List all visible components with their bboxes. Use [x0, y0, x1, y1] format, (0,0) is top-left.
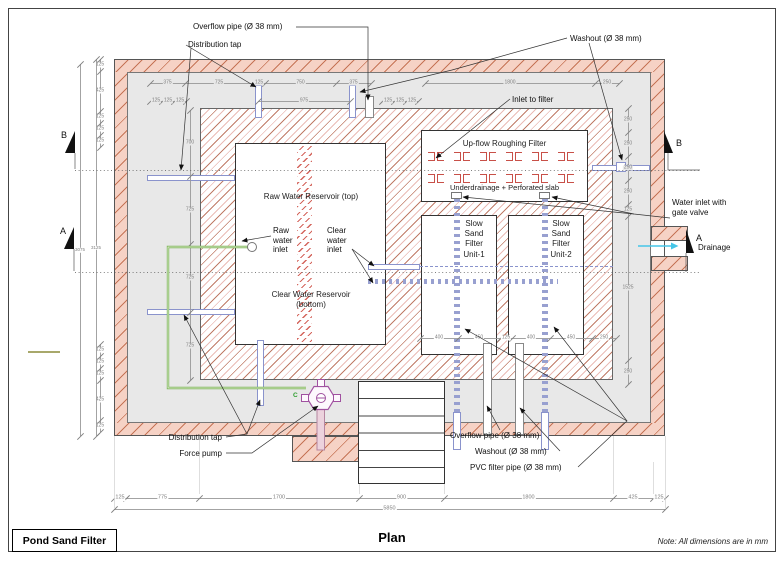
- bracket-icon: [437, 174, 444, 183]
- bracket-icon: [515, 174, 522, 183]
- gate-valve-unit1: [451, 192, 462, 199]
- section-letter-b-0: B: [61, 130, 67, 140]
- section-letter-a-3: A: [696, 233, 702, 243]
- bracket-icon: [437, 152, 444, 161]
- drawing-sheet: Raw Water Reservoir (top) Clear Water Re…: [0, 0, 784, 566]
- washout-pipe-bottom-stub: [515, 343, 524, 435]
- callout-clear-water-inlet: Clear water inlet: [327, 226, 347, 255]
- bracket-icon: [489, 174, 496, 183]
- drawing-caption: Plan: [352, 530, 432, 545]
- bracket-icon: [480, 152, 487, 161]
- callout-pvc-filter-pipe: PVC filter pipe (Ø 38 mm): [470, 463, 562, 473]
- drain-duct-top-wall: [651, 226, 688, 241]
- callout-distribution-tap-bottom: Distribution tap: [169, 433, 222, 443]
- callout-water-inlet-gate-valve: Water inlet with gate valve: [672, 198, 726, 217]
- washout-pipe-top-right: [349, 85, 356, 118]
- label-ssf-unit2: Slow Sand Filter Unit-2: [539, 219, 583, 260]
- bracket-icon: [506, 152, 513, 161]
- washout-valve-right: [616, 162, 626, 172]
- bracket-icon: [532, 174, 539, 183]
- reservoir-partition-dashed: [297, 144, 312, 344]
- bracket-icon: [480, 174, 487, 183]
- bracket-icon: [567, 174, 574, 183]
- distribution-tap-pipe-lower: [147, 309, 235, 315]
- callout-raw-water-inlet: Raw water inlet: [273, 226, 293, 255]
- overflow-pipe-opening: [365, 96, 374, 118]
- washout-pipe-top-left: [255, 85, 262, 118]
- drain-duct-bottom-wall: [651, 256, 688, 271]
- callout-washout-top: Washout (Ø 38 mm): [570, 34, 642, 44]
- distribution-tap-pipe-upper: [147, 175, 235, 181]
- stairs: [358, 381, 445, 484]
- callout-force-pump: Force pump: [179, 449, 222, 459]
- gate-valve-unit2: [539, 192, 550, 199]
- bracket-icon: [463, 152, 470, 161]
- clear-water-inlet-pipe: [368, 264, 420, 270]
- label-raw-reservoir: Raw Water Reservoir (top): [240, 192, 382, 202]
- filter-pipe-end-2: [541, 412, 549, 450]
- bracket-icon: [541, 174, 548, 183]
- section-letter-a-1: A: [60, 226, 66, 236]
- pump-base-protrusion: [292, 436, 359, 462]
- callout-washout-bottom: Washout (Ø 38 mm): [475, 447, 547, 457]
- bracket-icon: [428, 152, 435, 161]
- bracket-icon: [541, 152, 548, 161]
- units-note: Note: All dimensions are in mm: [658, 537, 768, 546]
- label-clear-reservoir: Clear Water Reservoir (bottom): [242, 290, 380, 310]
- bracket-icon: [428, 174, 435, 183]
- bracket-icon: [506, 174, 513, 183]
- section-letter-b-2: B: [676, 138, 682, 148]
- title-block-label: Pond Sand Filter: [23, 535, 106, 547]
- title-block: Pond Sand Filter: [12, 529, 117, 552]
- bracket-icon: [532, 152, 539, 161]
- roughing-bracket-row: [428, 174, 584, 183]
- overflow-pipe-bottom-stub: [483, 343, 492, 435]
- hidden-pipe-line: [420, 266, 613, 269]
- label-ssf-unit1: Slow Sand Filter Unit-1: [452, 219, 496, 260]
- bracket-icon: [567, 152, 574, 161]
- bracket-icon: [515, 152, 522, 161]
- roughing-bracket-row: [428, 152, 584, 161]
- bracket-icon: [454, 174, 461, 183]
- label-underdrainage: Underdrainage + Perforated slab: [425, 183, 584, 193]
- bracket-icon: [558, 174, 565, 183]
- perforated-lateral-pipe: [368, 279, 558, 284]
- callout-distribution-tap-top: Distribution tap: [188, 40, 241, 50]
- callout-overflow-pipe-top: Overflow pipe (Ø 38 mm): [193, 22, 282, 32]
- pump-port-label: C: [293, 392, 298, 399]
- bracket-icon: [463, 174, 470, 183]
- callout-drainage: Drainage: [698, 243, 730, 253]
- bracket-icon: [489, 152, 496, 161]
- bracket-icon: [454, 152, 461, 161]
- distribution-tap-pipe-bottom: [257, 340, 264, 406]
- callout-inlet-to-filter: Inlet to filter: [512, 95, 553, 105]
- callout-overflow-pipe-bottom: Overflow pipe (Ø 38 mm): [450, 431, 539, 441]
- bracket-icon: [558, 152, 565, 161]
- label-roughing-filter: Up-flow Roughing Filter: [425, 139, 584, 149]
